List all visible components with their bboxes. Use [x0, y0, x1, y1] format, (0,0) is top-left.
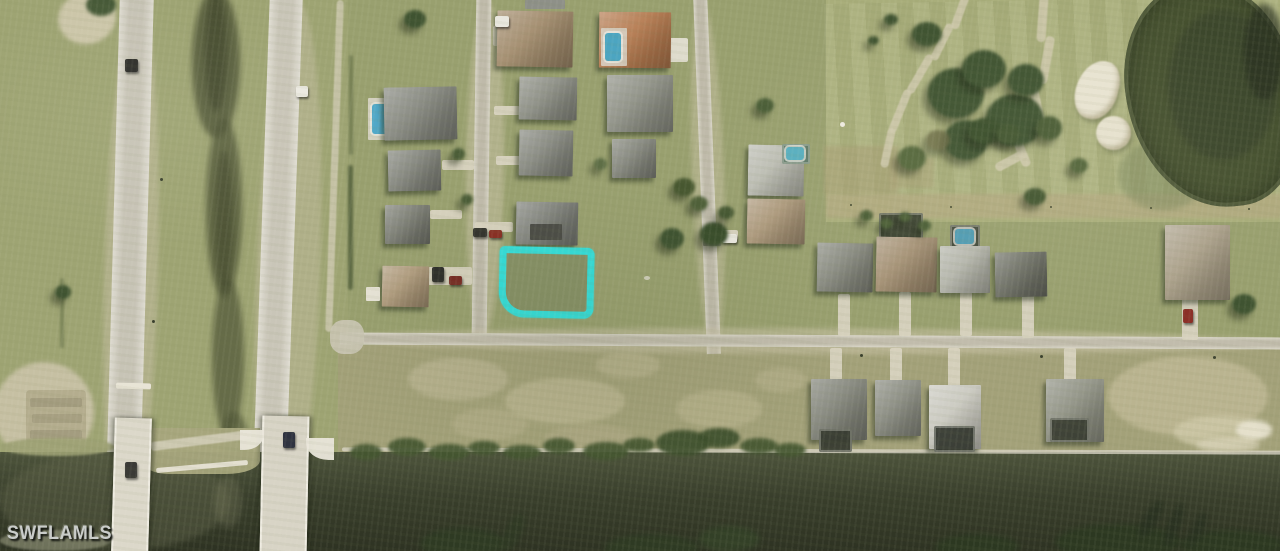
bridge-west [111, 418, 152, 551]
car [489, 230, 502, 238]
fence-post [950, 206, 952, 208]
house-large [1165, 225, 1230, 300]
shed [366, 287, 380, 301]
driveway [442, 160, 474, 170]
bank-tree [698, 428, 740, 448]
hedge-line [349, 55, 353, 155]
tree [1070, 158, 1088, 173]
bank-bush [388, 438, 426, 456]
tree [1232, 294, 1256, 314]
pool [955, 229, 974, 244]
pool-screen [1050, 418, 1089, 442]
utility-pole [160, 178, 163, 181]
scrub-sand [408, 358, 508, 400]
palm [880, 218, 893, 229]
highlighted-lot-outline [498, 246, 594, 319]
driveway [1064, 348, 1076, 382]
car [495, 16, 509, 27]
debris-dot [644, 276, 650, 280]
roof-dark-wing [530, 224, 562, 240]
driveway [430, 210, 462, 219]
pond-tree-shadow [1244, 4, 1280, 100]
house [385, 205, 430, 244]
sand-bunker [1096, 116, 1131, 150]
hedge-line [348, 165, 353, 290]
tree [718, 206, 734, 219]
tree [1024, 188, 1046, 205]
scrub-sand [452, 408, 528, 440]
scrub-sand [676, 390, 762, 428]
golf-tree [962, 50, 1006, 88]
tree [756, 98, 774, 113]
golf-tree [868, 36, 879, 45]
pool-screen [934, 426, 975, 452]
tree [404, 10, 426, 28]
fence-post [1050, 206, 1052, 208]
house [817, 243, 874, 293]
house [388, 150, 442, 192]
junction [330, 320, 364, 354]
house [747, 198, 806, 244]
tree [452, 148, 465, 160]
tree [673, 178, 695, 196]
tree [594, 158, 607, 170]
bank-bush [774, 443, 806, 457]
house [607, 75, 673, 132]
palm [899, 212, 911, 222]
driveway [494, 106, 520, 115]
canal-bank-grass [0, 438, 115, 456]
house [876, 236, 938, 292]
bank-bush [623, 438, 655, 452]
tree [55, 285, 71, 299]
watermark: SWFLAMLS [7, 524, 112, 543]
pool [605, 33, 621, 61]
bank-bush [503, 445, 541, 459]
car [296, 86, 308, 97]
golf-tree [1036, 116, 1062, 140]
house-partial [525, 0, 565, 9]
median-swale-dark [215, 150, 233, 290]
gravel-row [30, 398, 82, 407]
canal-reflection [214, 476, 242, 528]
driveway [890, 348, 902, 382]
tree [700, 222, 728, 246]
well-dot [840, 122, 845, 127]
car [449, 276, 462, 285]
bank-bush [428, 444, 470, 460]
house [612, 139, 656, 178]
bank-bush [543, 438, 575, 454]
scrub-sand [596, 352, 660, 378]
palm [860, 210, 873, 221]
golf-tree [898, 146, 926, 170]
car [432, 267, 444, 282]
bank-bush [468, 441, 500, 455]
utility-pole [1040, 355, 1043, 358]
fence-post [1248, 208, 1250, 210]
house [384, 86, 458, 140]
driveway [948, 348, 960, 387]
fence-post [1150, 207, 1152, 209]
fence-post [850, 204, 852, 206]
tree [996, 124, 1020, 144]
pool-screen [819, 429, 852, 452]
truck [125, 59, 138, 72]
golf-tree [1008, 64, 1044, 96]
utility-pole [860, 354, 863, 357]
tree [461, 194, 473, 205]
golf-tree [884, 14, 898, 25]
house [519, 76, 578, 120]
scrub-sand [755, 368, 807, 392]
house-waterfront [875, 380, 921, 436]
house [382, 266, 430, 308]
driveway [960, 292, 972, 336]
bank-bush [350, 444, 382, 460]
driveway [1022, 294, 1034, 338]
median-swale [212, 278, 244, 436]
utility-pole [152, 320, 155, 323]
palm [918, 220, 931, 231]
house [940, 246, 990, 293]
house [995, 252, 1048, 298]
bank-bush [740, 438, 778, 454]
car [125, 462, 137, 478]
house [519, 130, 574, 177]
car [473, 228, 487, 237]
golf-tree-dry [926, 130, 950, 150]
driveway [838, 294, 850, 336]
tree [690, 196, 708, 211]
bank-sand [1196, 438, 1260, 452]
water-tree-canopy [698, 526, 760, 551]
driveway [830, 348, 842, 380]
car [283, 432, 295, 448]
aerial-photo: SWFLAMLS [0, 0, 1280, 551]
utility-pole [1213, 356, 1216, 359]
vacant-lot-sand [1236, 420, 1272, 440]
gravel-row [32, 414, 82, 423]
golf-tree [912, 22, 942, 46]
crosswalk [116, 383, 151, 390]
tree [660, 228, 684, 249]
pool [786, 147, 804, 160]
car-red [1183, 309, 1193, 323]
driveway [899, 292, 911, 336]
